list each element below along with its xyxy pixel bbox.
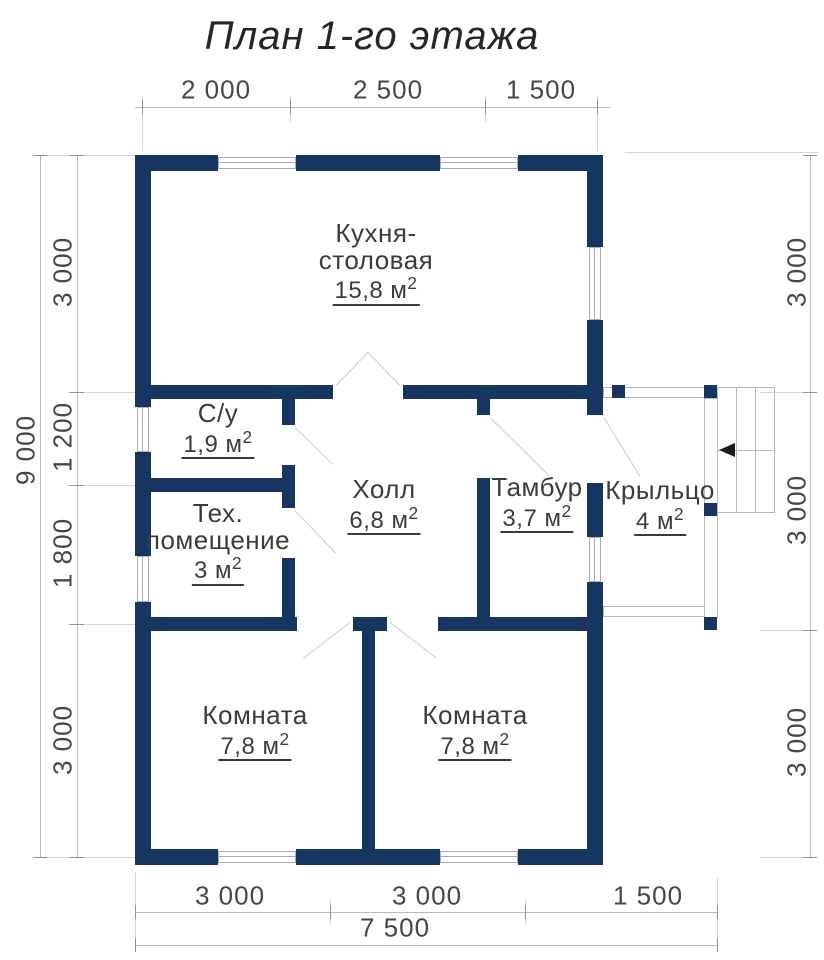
room-area: 7,8 м2 xyxy=(438,731,511,761)
dim-tick xyxy=(717,938,718,952)
dim-tick xyxy=(70,485,84,486)
room-label-porch: Крыльцо 4 м2 xyxy=(605,477,715,536)
door-swing-line xyxy=(390,622,437,659)
dimension-line-bottom-total xyxy=(135,945,717,946)
room-label-bathroom: С/у 1,9 м2 xyxy=(181,400,254,459)
dim-tick xyxy=(70,155,84,156)
wall-exterior-bottom xyxy=(135,849,218,865)
wall-exterior-right xyxy=(587,582,603,865)
wall-tambour-west xyxy=(477,478,490,617)
wall-bathroom-tech-divider xyxy=(151,478,282,492)
wall-kitchen-south xyxy=(151,385,333,399)
porch-post xyxy=(704,617,717,630)
room-label-tambour: Тамбур 3,7 м2 xyxy=(491,474,582,533)
dim-label-right: 3 000 xyxy=(782,475,813,545)
floor-plan: План 1-го этажа xyxy=(0,0,824,960)
dim-tick xyxy=(135,938,136,952)
dim-label-bottom: 1 500 xyxy=(613,881,683,912)
dim-label-top: 1 500 xyxy=(506,75,576,106)
wall-exterior-right xyxy=(587,483,603,537)
stairs-direction-arrow xyxy=(719,443,735,457)
wall-rooms-north xyxy=(353,617,387,631)
page-title: План 1-го этажа xyxy=(205,14,540,59)
room-area: 3 м2 xyxy=(192,555,244,585)
wall-rooms-divider xyxy=(362,631,375,849)
dim-label-right: 3 000 xyxy=(782,707,813,777)
porch-rail xyxy=(603,606,705,617)
dim-tick xyxy=(142,100,143,114)
wall-exterior-left xyxy=(135,602,151,865)
dim-label-top: 2 500 xyxy=(353,75,423,106)
dimension-line-left-total xyxy=(40,155,41,858)
room-label-tech: Тех. помещение 3 м2 xyxy=(146,500,290,586)
dim-tick xyxy=(803,630,817,631)
dim-tick xyxy=(485,100,486,114)
dimension-line-top xyxy=(135,107,610,108)
dim-label-bottom: 3 000 xyxy=(195,881,265,912)
dim-tick xyxy=(70,392,84,393)
window xyxy=(440,157,518,169)
dim-tick xyxy=(70,624,84,625)
wall-exterior-right xyxy=(587,155,603,247)
wall-tambour-west xyxy=(477,399,490,415)
window xyxy=(589,247,601,320)
wall-exterior-left xyxy=(135,155,151,407)
wall-bathroom-east xyxy=(282,399,295,425)
dim-label-left: 3 000 xyxy=(48,237,79,307)
dim-tick xyxy=(135,905,136,919)
door-swing-line xyxy=(303,622,350,659)
room-area: 15,8 м2 xyxy=(333,275,420,305)
porch-post xyxy=(704,385,717,398)
extension-line xyxy=(33,857,135,858)
window xyxy=(589,537,601,582)
extension-line xyxy=(33,155,135,156)
window xyxy=(218,157,296,169)
wall-exterior-right xyxy=(587,320,603,415)
room-label-room1: Комната 7,8 м2 xyxy=(202,702,307,761)
porch-post xyxy=(612,385,625,398)
wall-exterior-top xyxy=(296,155,440,171)
room-area: 4 м2 xyxy=(634,506,686,536)
dim-tick xyxy=(330,905,331,919)
room-label-hall: Холл 6,8 м2 xyxy=(347,476,420,535)
dim-tick xyxy=(803,392,817,393)
dim-label-top: 2 000 xyxy=(181,75,251,106)
room-area: 6,8 м2 xyxy=(347,505,420,535)
dim-label-left: 3 000 xyxy=(48,705,79,775)
dim-label-left: 1 200 xyxy=(48,402,79,472)
dim-tick xyxy=(70,857,84,858)
dim-tick xyxy=(717,905,718,919)
room-label-room2: Комната 7,8 м2 xyxy=(422,702,527,761)
dim-tick xyxy=(803,155,817,156)
door-swing-line xyxy=(368,352,401,386)
dim-label-left-total: 9 000 xyxy=(11,415,42,485)
dim-tick xyxy=(525,905,526,919)
door-swing-line xyxy=(604,417,641,476)
dim-tick xyxy=(803,857,817,858)
window xyxy=(137,407,149,452)
dim-tick xyxy=(33,857,47,858)
door-swing-line xyxy=(336,352,369,386)
room-area: 3,7 м2 xyxy=(500,503,573,533)
wall-exterior-bottom xyxy=(296,849,440,865)
wall-kitchen-south xyxy=(403,385,587,399)
wall-rooms-north xyxy=(438,617,587,631)
dim-label-bottom: 3 000 xyxy=(392,881,462,912)
door-swing-line xyxy=(490,417,551,477)
room-label-kitchen: Кухня- столовая 15,8 м2 xyxy=(319,220,434,306)
door-swing-line xyxy=(295,427,334,465)
dim-label-bottom-total: 7 500 xyxy=(360,913,430,944)
extension-line xyxy=(625,152,818,153)
room-area: 7,8 м2 xyxy=(218,731,291,761)
wall-rooms-north xyxy=(151,617,297,631)
window xyxy=(440,851,518,863)
dim-tick xyxy=(597,100,598,114)
door-swing-line xyxy=(295,510,336,553)
dim-label-right: 3 000 xyxy=(782,237,813,307)
dim-label-left: 1 800 xyxy=(48,518,79,588)
room-area: 1,9 м2 xyxy=(181,429,254,459)
dim-tick xyxy=(290,100,291,114)
dim-tick xyxy=(33,155,47,156)
window xyxy=(218,851,296,863)
